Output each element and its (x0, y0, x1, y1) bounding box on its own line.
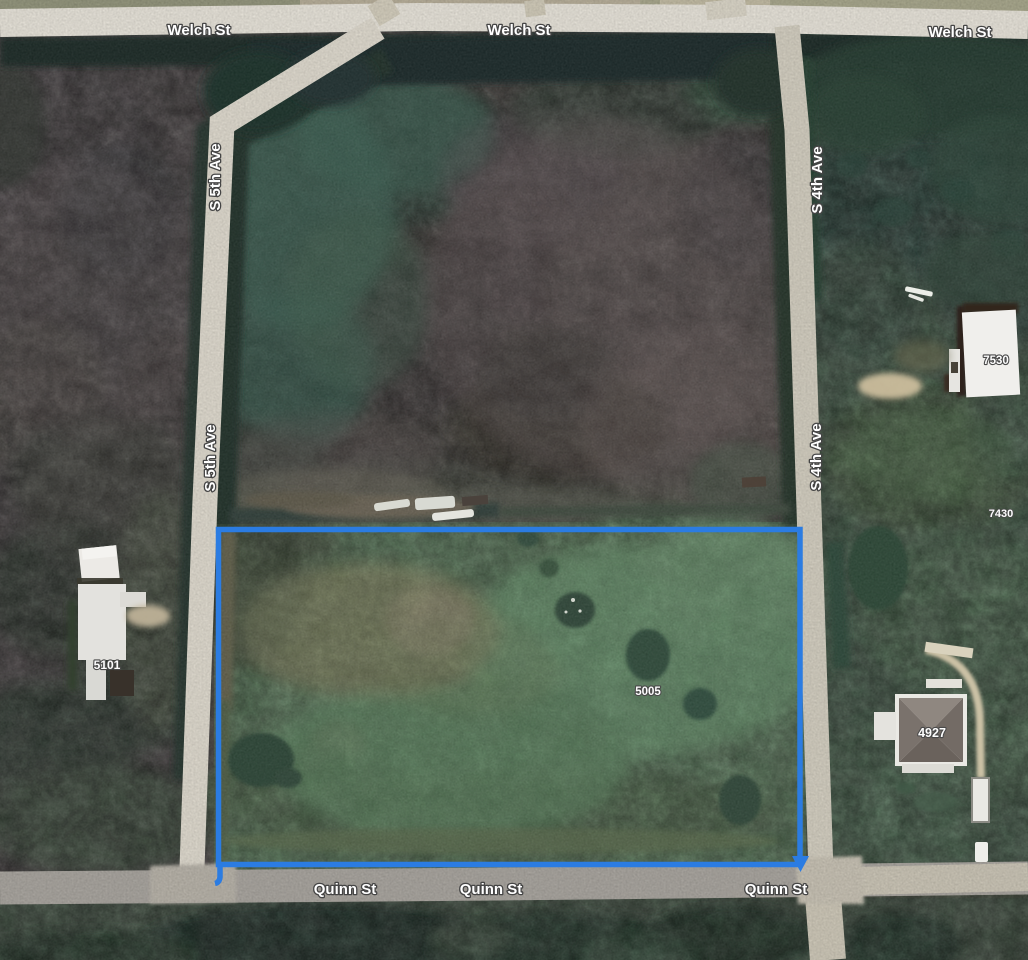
svg-text:Quinn St: Quinn St (460, 881, 523, 898)
svg-text:5005: 5005 (635, 686, 661, 698)
svg-text:5101: 5101 (94, 658, 121, 672)
svg-text:Welch St: Welch St (167, 22, 230, 39)
svg-text:4927: 4927 (918, 726, 946, 740)
svg-text:S 4th Ave: S 4th Ave (808, 423, 825, 490)
svg-text:Welch St: Welch St (928, 24, 991, 41)
svg-text:7530: 7530 (983, 355, 1009, 367)
svg-text:Quinn St: Quinn St (314, 881, 377, 898)
svg-text:7430: 7430 (989, 508, 1013, 520)
svg-text:S 4th Ave: S 4th Ave (809, 146, 826, 213)
svg-text:Quinn St: Quinn St (745, 881, 808, 898)
svg-text:S 5th Ave: S 5th Ave (207, 143, 224, 210)
svg-text:S 5th Ave: S 5th Ave (202, 424, 219, 491)
svg-text:Welch St: Welch St (487, 22, 550, 39)
